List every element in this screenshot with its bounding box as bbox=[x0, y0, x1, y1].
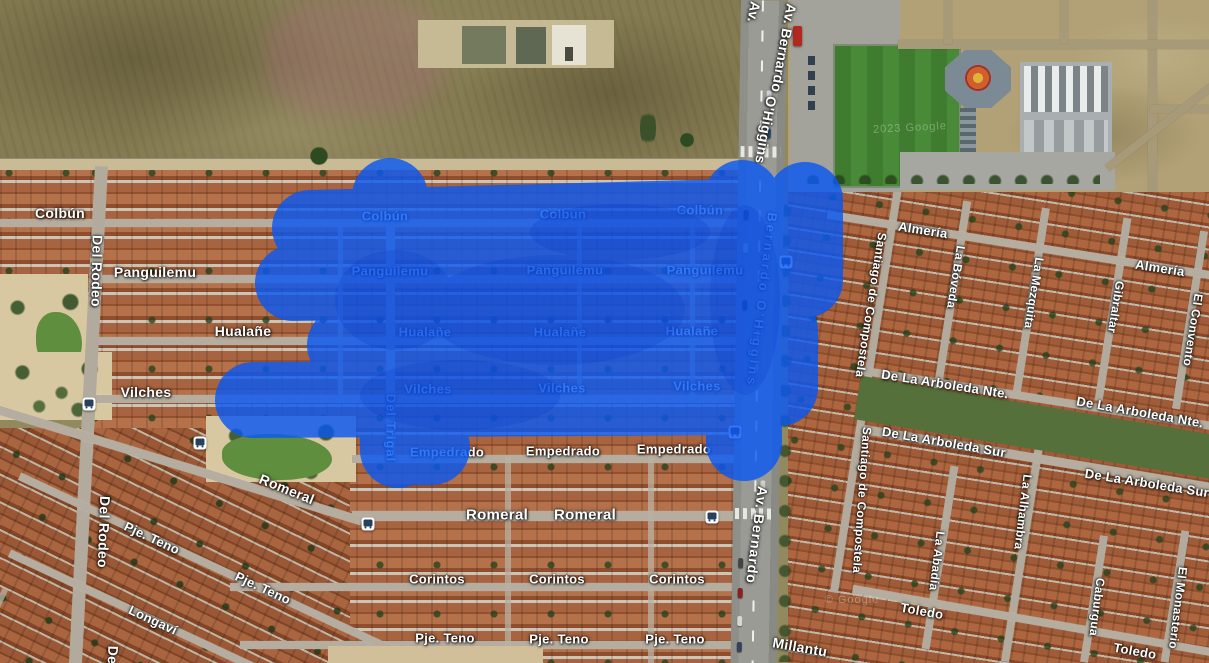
dirt-path bbox=[1148, 0, 1157, 192]
car bbox=[766, 90, 771, 100]
street-lane bbox=[338, 219, 343, 403]
tree bbox=[640, 108, 656, 148]
crosswalk bbox=[741, 146, 781, 158]
street-lane bbox=[690, 219, 695, 403]
dirt-path bbox=[944, 0, 952, 44]
street-colbun bbox=[0, 219, 746, 227]
car bbox=[738, 588, 743, 598]
street-romeral bbox=[352, 511, 746, 521]
dirt-road bbox=[0, 158, 748, 170]
car bbox=[760, 480, 765, 490]
lane-marking bbox=[751, 0, 764, 663]
street-panguilemu bbox=[92, 275, 746, 283]
red-truck bbox=[793, 26, 802, 46]
satellite-map[interactable]: ColbúnColbúnColbúnColbúnPanguilemuPangui… bbox=[0, 0, 1209, 663]
octagon-building bbox=[945, 50, 1011, 108]
car bbox=[766, 128, 771, 138]
street-corintos bbox=[230, 583, 746, 591]
dirt-path bbox=[1060, 0, 1068, 44]
tree bbox=[680, 132, 694, 148]
street-lane bbox=[648, 455, 654, 663]
tree bbox=[310, 146, 328, 166]
car bbox=[744, 210, 749, 220]
facility-hedge-trees bbox=[800, 166, 1100, 184]
street-lane bbox=[577, 219, 582, 403]
concrete-pad bbox=[516, 27, 546, 64]
car bbox=[737, 616, 742, 626]
crosswalk bbox=[735, 508, 775, 520]
car bbox=[738, 558, 743, 568]
concrete-pad bbox=[552, 25, 586, 65]
street-del-trigal bbox=[386, 219, 395, 463]
street-lane bbox=[505, 455, 511, 663]
car bbox=[742, 300, 747, 310]
street-empedrado bbox=[352, 455, 746, 463]
sand-strip-south bbox=[328, 646, 543, 663]
street-hualane bbox=[92, 337, 746, 345]
street-vilches bbox=[92, 395, 746, 403]
car bbox=[743, 243, 748, 253]
concrete-pad bbox=[462, 26, 506, 64]
parked-cars bbox=[808, 56, 815, 116]
car bbox=[737, 642, 742, 652]
